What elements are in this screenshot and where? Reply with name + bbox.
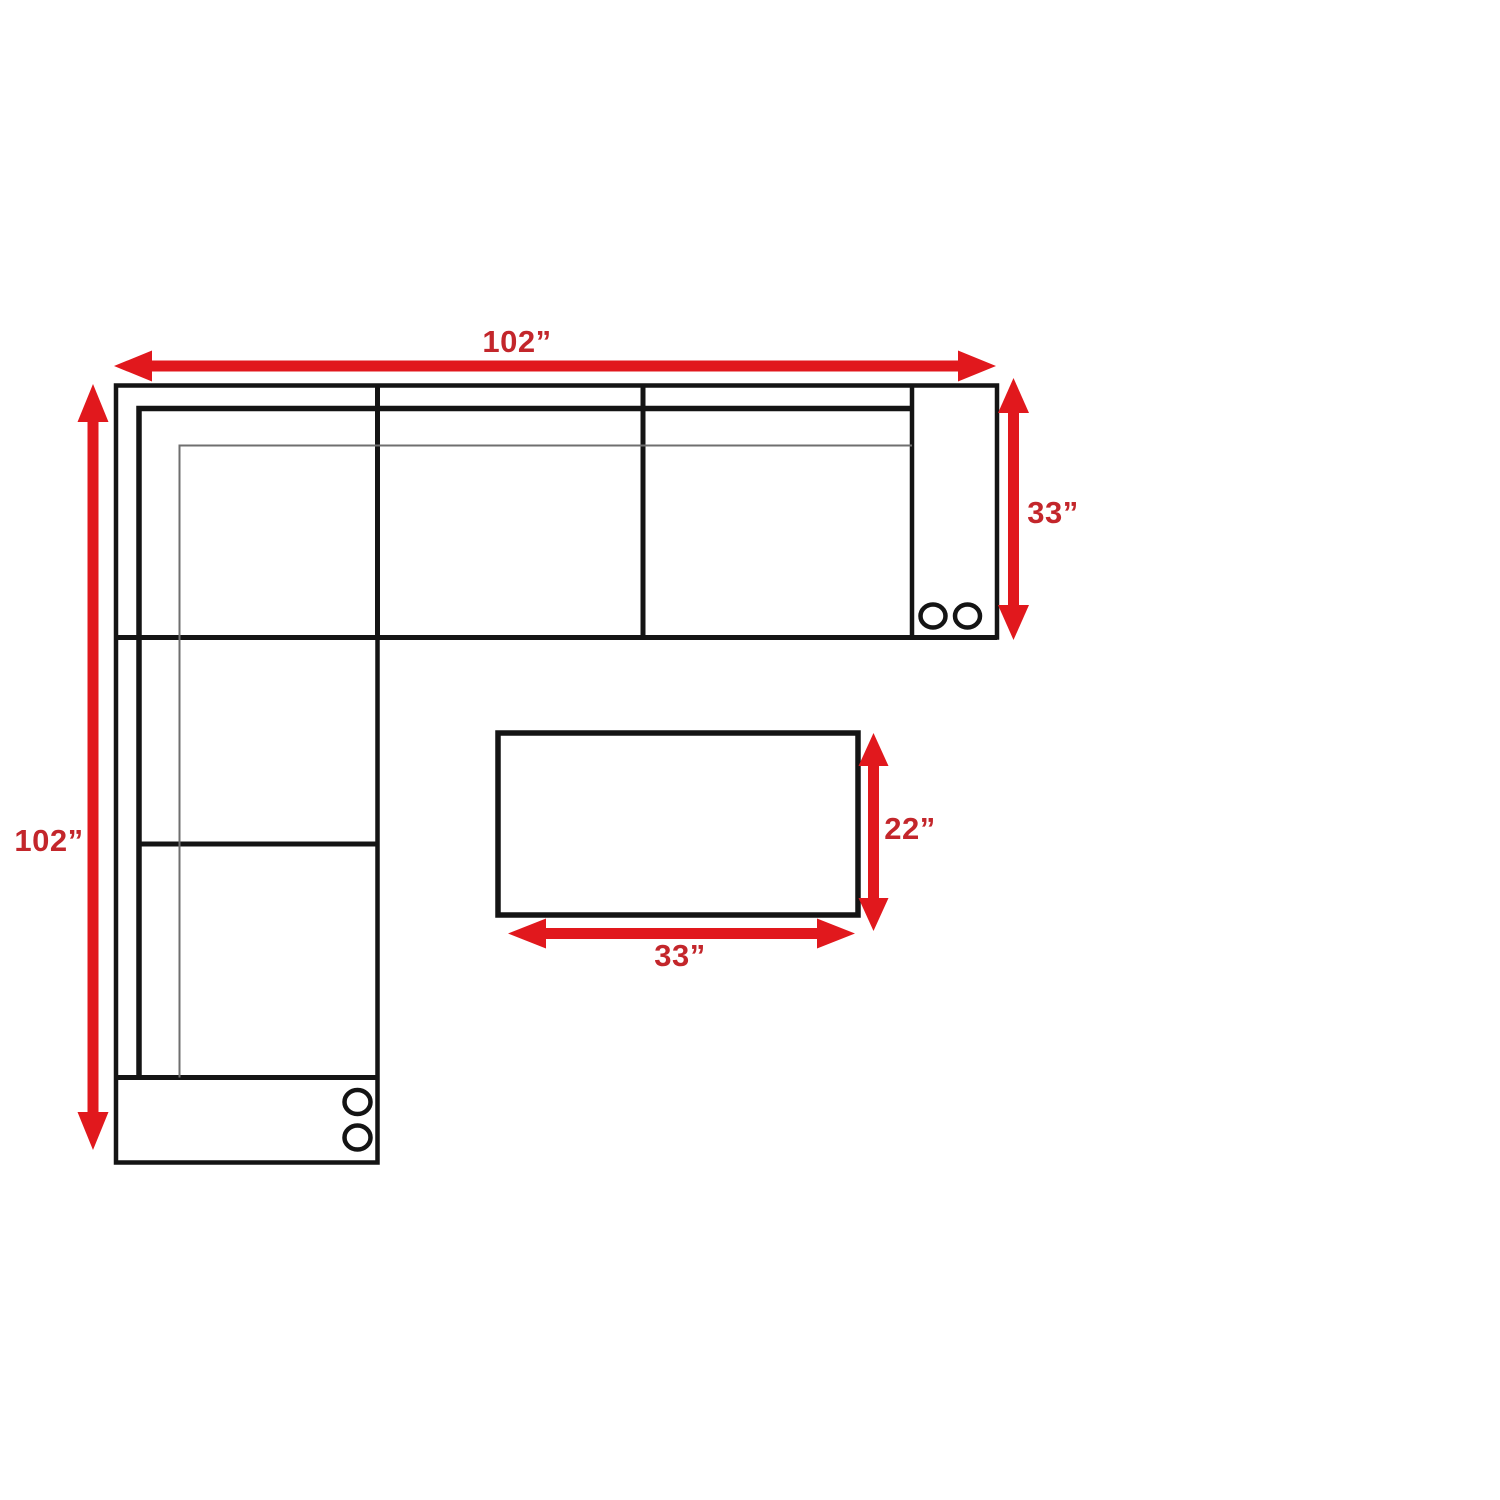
ottoman-width-label: 33”	[654, 938, 705, 973]
arrowhead-right	[817, 919, 855, 949]
overall-width-label: 102”	[482, 324, 551, 359]
arrowhead-bottom	[998, 605, 1029, 640]
sofa-dimension-diagram: 102” 102” 33” 22” 33”	[0, 0, 1500, 1500]
arrowhead-right	[958, 351, 996, 382]
cupholder-icon	[955, 605, 980, 628]
arm-depth-label: 33”	[1027, 495, 1078, 530]
ottoman-depth-label: 22”	[884, 811, 935, 846]
overall-depth-arrow	[78, 384, 109, 1150]
ottoman-outline	[498, 733, 858, 915]
overall-depth-label: 102”	[14, 823, 83, 858]
arrowhead-top	[859, 733, 889, 766]
arrowhead-top	[78, 384, 109, 422]
arrowhead-bottom	[78, 1112, 109, 1150]
arrow-shaft	[868, 764, 879, 900]
arm-depth-arrow	[998, 378, 1029, 640]
cupholder-icon	[345, 1090, 371, 1114]
arrowhead-top	[998, 378, 1029, 413]
arrow-shaft	[150, 361, 958, 372]
cupholder-icon	[345, 1126, 371, 1150]
diagram-canvas: 102” 102” 33” 22” 33”	[0, 0, 1500, 1500]
arrow-shaft	[1008, 410, 1019, 608]
arrowhead-left	[114, 351, 152, 382]
cupholder-icon	[921, 605, 946, 628]
arrow-shaft	[88, 420, 99, 1114]
overall-width-arrow	[114, 351, 996, 382]
arrowhead-bottom	[859, 898, 889, 931]
arrowhead-left	[508, 919, 546, 949]
